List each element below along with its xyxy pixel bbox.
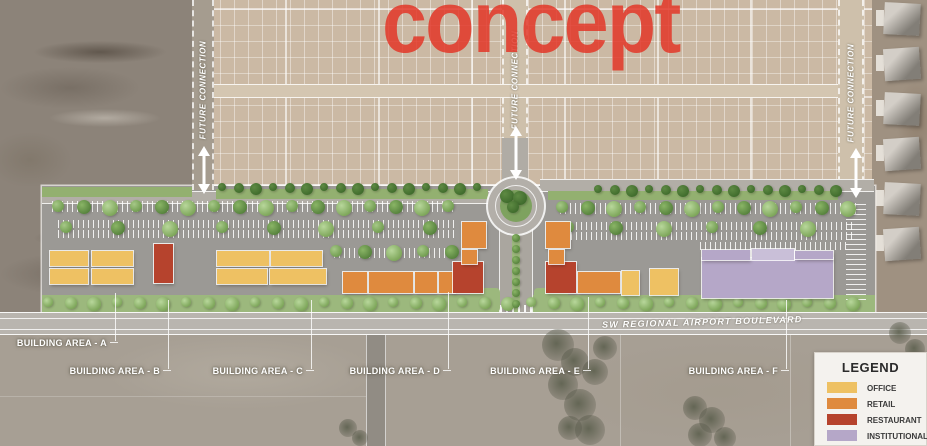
building-retail	[549, 250, 564, 264]
building-institutional	[702, 258, 833, 298]
building-restaurant	[154, 244, 173, 283]
tree	[417, 245, 429, 257]
tree	[728, 185, 740, 197]
callout-leader	[583, 370, 591, 371]
tree	[684, 201, 700, 217]
building-area-label: BUILDING AREA - B	[50, 366, 160, 376]
bare-tree	[558, 416, 582, 440]
field-line	[0, 396, 366, 397]
tree	[712, 201, 724, 213]
tree	[798, 185, 806, 193]
tree	[763, 185, 773, 195]
tree	[52, 200, 64, 212]
legend-label: RESTAURANT	[867, 416, 922, 425]
tree	[814, 185, 824, 195]
tree	[363, 297, 377, 311]
tree	[594, 185, 602, 193]
tree	[645, 185, 653, 193]
tree	[570, 297, 584, 311]
building-office	[217, 251, 269, 266]
tree	[556, 201, 568, 213]
bare-tree	[688, 423, 712, 446]
tree	[438, 183, 448, 193]
landscape-strip	[548, 191, 838, 200]
tree	[606, 201, 622, 217]
tree	[706, 221, 718, 233]
tree	[208, 200, 220, 212]
legend-label: INSTITUTIONAL	[867, 432, 927, 441]
building-area-label: BUILDING AREA - E	[470, 366, 580, 376]
building-retail	[415, 272, 437, 293]
legend-item: INSTITUTIONAL	[827, 430, 922, 441]
tree	[846, 297, 860, 311]
tree	[659, 201, 673, 215]
tree	[269, 183, 277, 191]
tree	[454, 183, 466, 195]
tree	[677, 185, 689, 197]
plat-street	[214, 84, 838, 98]
tree	[341, 297, 353, 309]
tree	[319, 297, 329, 307]
double-arrow-icon	[509, 126, 523, 180]
field-line	[790, 335, 791, 446]
tree	[747, 185, 755, 193]
landscape-strip	[42, 187, 192, 197]
callout-leader	[448, 292, 449, 369]
building-retail	[462, 250, 477, 264]
tree	[111, 221, 125, 235]
building-area-label: BUILDING AREA - C	[193, 366, 303, 376]
tree	[442, 200, 454, 212]
tree	[708, 297, 722, 311]
tree	[336, 200, 352, 216]
building-office	[650, 269, 678, 295]
tree	[473, 183, 481, 191]
house	[883, 92, 921, 126]
building-office	[92, 269, 133, 284]
tree	[422, 183, 430, 191]
tree	[664, 297, 674, 307]
tree	[387, 183, 397, 193]
tree	[43, 297, 53, 307]
tree	[639, 297, 653, 311]
tree	[830, 185, 842, 197]
building-office	[270, 269, 326, 284]
building-institutional	[702, 250, 750, 260]
future-connection-label: FUTURE CONNECTION	[847, 44, 856, 143]
building-retail	[462, 222, 486, 248]
legend-item: RESTAURANT	[827, 414, 922, 425]
tree	[512, 234, 520, 242]
tree	[595, 297, 605, 307]
tree	[656, 221, 672, 237]
tree	[311, 200, 325, 214]
tree	[272, 297, 284, 309]
legend-box: LEGEND OFFICERETAILRESTAURANTINSTITUTION…	[814, 352, 927, 446]
tree	[512, 245, 520, 253]
building-office	[271, 251, 322, 266]
building-restaurant	[453, 262, 483, 293]
legend-swatch-institutional	[827, 430, 857, 441]
tree	[162, 221, 178, 237]
tree	[737, 201, 751, 215]
tree	[479, 297, 491, 309]
tree	[815, 201, 829, 215]
tree	[388, 297, 398, 307]
legend-swatch-retail	[827, 398, 857, 409]
tree	[661, 185, 671, 195]
tree	[372, 221, 384, 233]
tree	[250, 183, 262, 195]
tree	[180, 200, 196, 216]
tree	[512, 256, 520, 264]
callout-leader	[786, 300, 787, 369]
callout-leader	[306, 370, 314, 371]
bare-tree	[714, 427, 736, 446]
house	[883, 137, 921, 171]
legend-label: RETAIL	[867, 400, 895, 409]
tree	[364, 200, 376, 212]
field-line	[620, 335, 621, 446]
tree	[526, 297, 536, 307]
tree	[457, 297, 467, 307]
tree	[512, 300, 520, 308]
house	[883, 2, 921, 36]
tree	[617, 297, 629, 309]
building-retail	[343, 272, 367, 293]
bare-tree	[593, 336, 617, 360]
tree	[755, 297, 767, 309]
tree	[410, 297, 422, 309]
tree	[336, 183, 346, 193]
tree	[216, 221, 228, 233]
tree	[423, 221, 437, 235]
legend-title: LEGEND	[815, 360, 926, 375]
callout-leader	[163, 370, 171, 371]
building-retail	[369, 272, 413, 293]
future-connection-label: FUTURE CONNECTION	[199, 41, 208, 140]
tree	[512, 289, 520, 297]
tree	[258, 200, 274, 216]
tree	[386, 245, 402, 261]
legend-item: RETAIL	[827, 398, 922, 409]
tree	[102, 200, 118, 216]
tree	[762, 201, 778, 217]
callout-leader	[588, 297, 589, 369]
site-plan-canvas: FUTURE CONNECTIONFUTURE CONNECTIONFUTURE…	[0, 0, 927, 446]
tree	[285, 183, 295, 193]
tree	[777, 297, 791, 311]
callout-leader	[311, 300, 312, 369]
parking-stripes	[846, 204, 866, 300]
building-office	[50, 269, 88, 284]
double-arrow-icon	[197, 146, 211, 194]
legend-label: OFFICE	[867, 384, 896, 393]
building-office	[50, 251, 88, 266]
tree	[320, 183, 328, 191]
callout-leader	[443, 370, 451, 371]
tree	[218, 183, 226, 191]
callout-leader	[110, 342, 118, 343]
tree	[155, 200, 169, 214]
tree	[581, 201, 595, 215]
tree	[371, 183, 379, 191]
legend-swatch-office	[827, 382, 857, 393]
tree	[234, 183, 244, 193]
lane-line	[0, 329, 927, 330]
legend-item: OFFICE	[827, 382, 922, 393]
tree	[225, 297, 239, 311]
tree	[634, 201, 646, 213]
tree	[790, 201, 802, 213]
tree	[181, 297, 191, 307]
tree	[626, 185, 638, 197]
building-office	[622, 271, 639, 295]
tree	[352, 183, 364, 195]
tree	[432, 297, 446, 311]
tree	[60, 221, 72, 233]
tree	[445, 245, 459, 259]
house	[883, 47, 921, 81]
tree	[753, 221, 767, 235]
tree	[318, 221, 334, 237]
tree	[802, 297, 812, 307]
tree	[87, 297, 101, 311]
tree	[840, 201, 856, 217]
building-area-label: BUILDING AREA - A	[0, 338, 107, 348]
tree	[512, 267, 520, 275]
tree	[301, 183, 313, 195]
double-arrow-icon	[849, 148, 863, 198]
parking-stripes	[560, 203, 856, 214]
tree	[733, 297, 743, 307]
tree	[233, 200, 247, 214]
callout-leader	[115, 293, 116, 341]
tree	[286, 200, 298, 212]
tree	[65, 297, 77, 309]
tree	[696, 185, 704, 193]
tree	[294, 297, 308, 311]
callout-leader	[168, 300, 169, 369]
field-road	[366, 335, 386, 446]
building-area-label: BUILDING AREA - F	[668, 366, 778, 376]
bare-tree	[582, 359, 608, 385]
tree	[389, 200, 403, 214]
tree	[267, 221, 281, 235]
building-institutional	[795, 251, 833, 259]
building-area-label: BUILDING AREA - D	[330, 366, 440, 376]
concept-watermark: concept	[382, 0, 680, 66]
tree	[203, 297, 215, 309]
legend-swatch-restaurant	[827, 414, 857, 425]
house	[883, 227, 921, 261]
building-office	[92, 251, 133, 266]
tree	[330, 245, 342, 257]
tree	[250, 297, 260, 307]
house	[883, 182, 921, 216]
building-roof-detail	[752, 249, 794, 260]
tree	[130, 200, 142, 212]
tree	[800, 221, 816, 237]
callout-leader	[781, 370, 789, 371]
tree	[358, 245, 372, 259]
building-retail	[578, 272, 620, 293]
tree	[403, 183, 415, 195]
building-restaurant	[546, 262, 576, 293]
tree	[686, 297, 698, 309]
tree	[134, 297, 146, 309]
tree	[512, 278, 520, 286]
tree	[609, 221, 623, 235]
tree	[507, 201, 519, 213]
tree	[610, 185, 620, 195]
building-office	[217, 269, 267, 284]
bare-tree	[352, 430, 368, 446]
tree	[77, 200, 91, 214]
tree	[712, 185, 722, 195]
building-retail	[546, 222, 570, 248]
tree	[112, 297, 122, 307]
tree	[414, 200, 430, 216]
tree	[548, 297, 560, 309]
tree	[779, 185, 791, 197]
tree	[824, 297, 836, 309]
